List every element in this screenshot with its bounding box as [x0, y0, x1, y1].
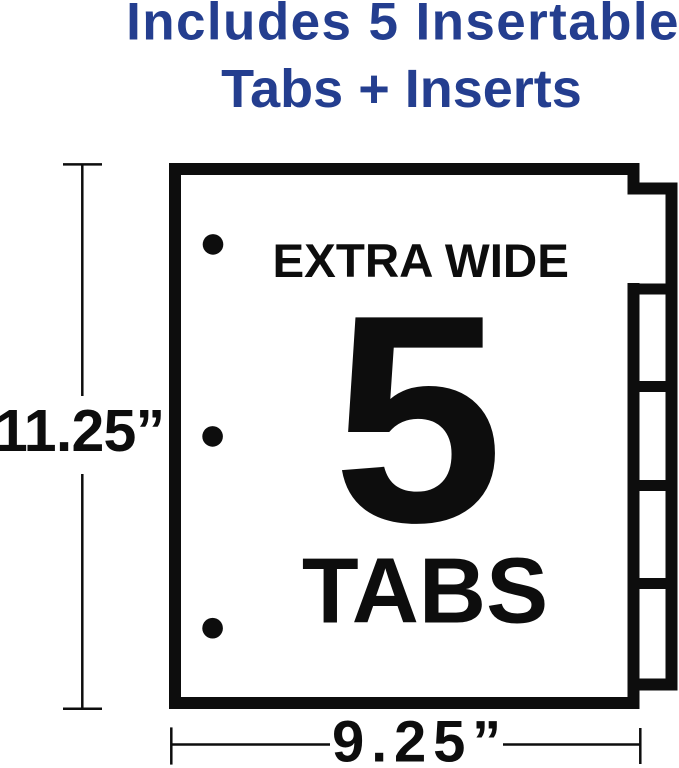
svg-text:Tabs + Inserts: Tabs + Inserts — [221, 59, 582, 119]
svg-text:Includes 5 Insertable: Includes 5 Insertable — [126, 0, 679, 52]
svg-text:TABS: TABS — [302, 539, 548, 643]
svg-text:5: 5 — [333, 253, 504, 584]
svg-text:9.25”: 9.25” — [332, 710, 508, 768]
svg-text:11.25”: 11.25” — [0, 398, 164, 464]
